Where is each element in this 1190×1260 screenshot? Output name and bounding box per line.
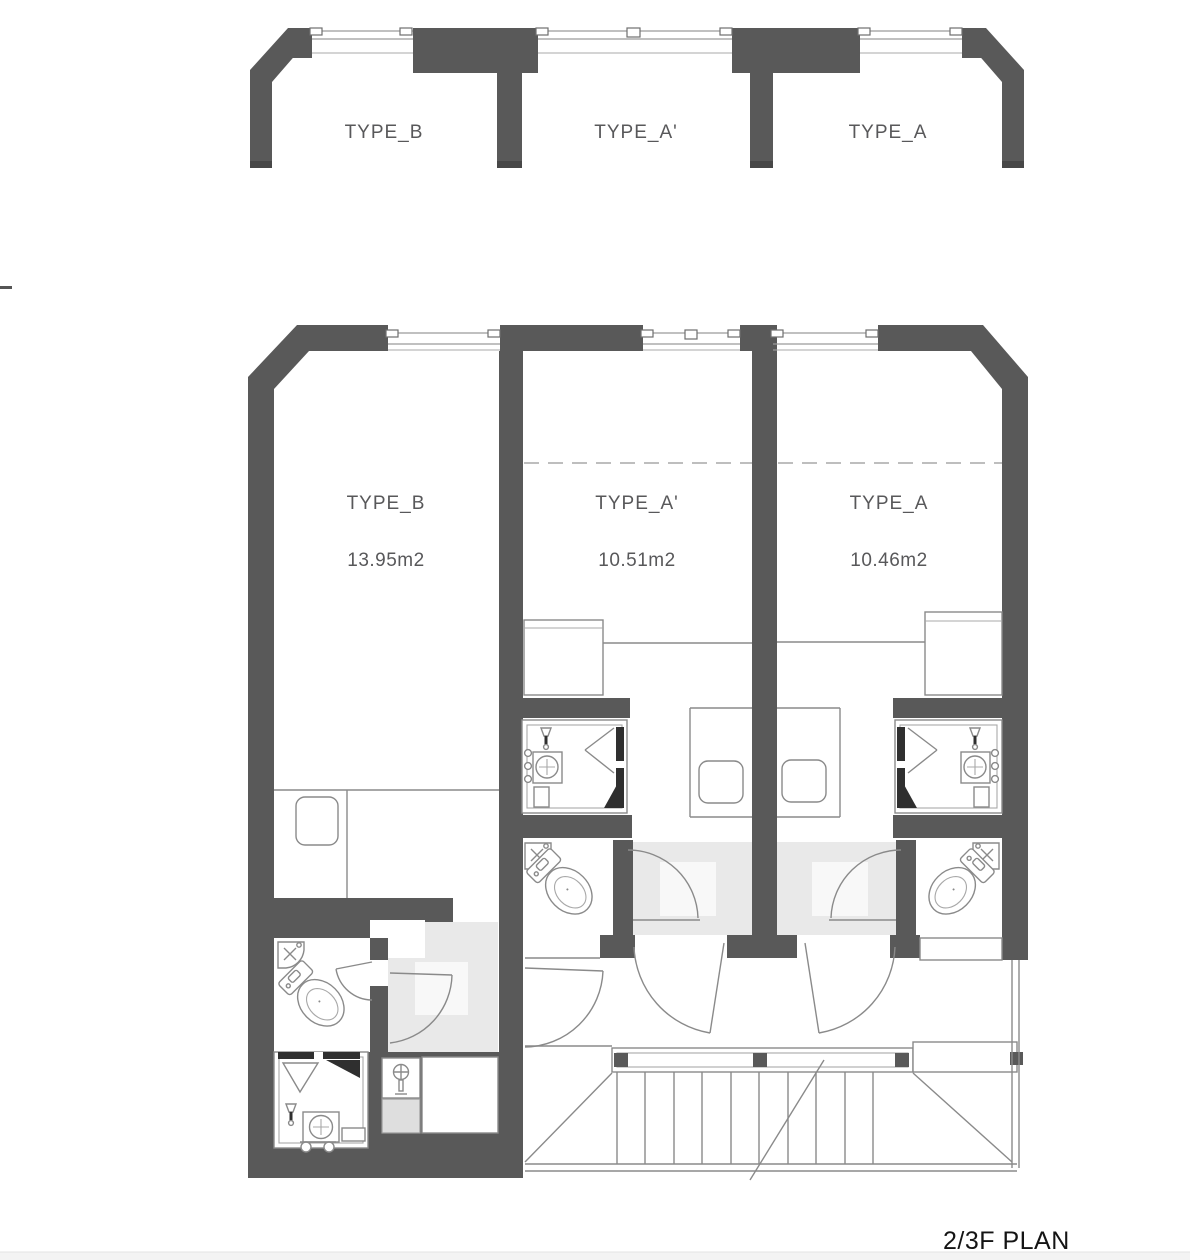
kitchen-counter — [382, 1057, 498, 1133]
upper-wall — [413, 28, 538, 73]
closet-a2 — [524, 620, 603, 695]
top-wall — [740, 325, 777, 351]
upper-wall-left — [250, 70, 272, 168]
right-wall — [1002, 377, 1028, 960]
corridor-door-a2 — [634, 943, 724, 1033]
top-wall — [297, 325, 388, 351]
upper-room-label-type-a: TYPE_A — [849, 122, 928, 143]
desk-a2 — [690, 708, 752, 817]
kitchen-lower-cabinet — [382, 1099, 420, 1133]
shower-room-b — [274, 1052, 368, 1152]
stair-landing — [913, 1042, 1017, 1072]
upper-wall-stub — [497, 70, 522, 168]
closet-a — [925, 612, 1002, 695]
stool-icon — [296, 797, 338, 845]
shower-room-a — [895, 720, 1002, 813]
stair-treads — [617, 1072, 873, 1164]
stair-bottom-edge — [525, 1164, 1017, 1171]
upper-room-label-type-a2: TYPE_A' — [594, 122, 678, 143]
upper-wall — [732, 28, 860, 73]
desk-a — [777, 708, 840, 817]
divider-wall-a2-a — [752, 351, 777, 958]
south-wall — [248, 1148, 523, 1178]
page-bottom-strip — [0, 1252, 1190, 1260]
upper-window-1 — [310, 28, 413, 53]
stair-winder-right — [913, 1073, 1012, 1162]
edge-tick — [0, 286, 12, 289]
left-wall — [248, 377, 274, 1178]
appliance-space — [422, 1057, 498, 1133]
stair-direction-line — [750, 1060, 824, 1180]
toilet-room-b — [276, 942, 372, 1035]
entry-a2 — [628, 842, 752, 935]
stool-icon — [782, 760, 826, 802]
upper-partial-plan: TYPE_B TYPE_A' TYPE_A — [250, 28, 1024, 168]
toilet-room-a2 — [524, 843, 602, 923]
main-plan: TYPE_B 13.95m2 TYPE_A' 10.51m2 TYPE_A 10… — [248, 325, 1028, 1180]
corridor-opening — [920, 938, 1002, 960]
room-type-b: TYPE_B 13.95m2 — [347, 493, 426, 571]
room-label-type-a2: TYPE_A' — [595, 493, 679, 514]
entry-a — [777, 842, 901, 935]
entry-mat — [660, 862, 716, 916]
upper-wall — [288, 28, 312, 58]
window-type-a2 — [641, 330, 740, 350]
room-area-type-a2: 10.51m2 — [598, 550, 675, 571]
upper-window-3 — [858, 28, 962, 53]
stool-icon — [699, 761, 743, 803]
upper-window-2 — [536, 28, 732, 53]
window-type-b — [386, 330, 500, 350]
upper-wall-right — [1002, 70, 1024, 168]
shower-room-a2 — [522, 720, 627, 813]
type-b-south-wall — [272, 898, 453, 920]
bed-platform-b — [274, 790, 499, 898]
plan-title: 2/3F PLAN — [943, 1227, 1070, 1255]
top-wall — [500, 325, 643, 351]
entry-b — [388, 922, 498, 1053]
room-type-a: TYPE_A 10.46m2 — [850, 493, 929, 571]
upper-wall — [962, 28, 986, 58]
toilet-room-a — [920, 843, 999, 923]
floor-plan-page: TYPE_B TYPE_A' TYPE_A — [0, 0, 1190, 1260]
room-area-type-b: 13.95m2 — [347, 550, 424, 571]
entry-mat — [415, 962, 468, 1015]
stair-winder-left — [525, 1073, 612, 1162]
door-swing-icon — [336, 962, 372, 1000]
room-type-a2: TYPE_A' 10.51m2 — [595, 493, 679, 571]
upper-room-label-type-b: TYPE_B — [345, 122, 424, 143]
window-type-a — [771, 330, 878, 350]
entry-mat — [812, 862, 868, 916]
corridor-door-b — [525, 968, 603, 1047]
top-wall — [878, 325, 983, 351]
room-label-type-a: TYPE_A — [850, 493, 929, 514]
corridor-door-a — [805, 943, 895, 1033]
room-area-type-a: 10.46m2 — [850, 550, 927, 571]
upper-wall-stub — [750, 70, 773, 168]
floor-plan-canvas: TYPE_B TYPE_A' TYPE_A — [0, 0, 1190, 1260]
room-label-type-b: TYPE_B — [347, 493, 426, 514]
